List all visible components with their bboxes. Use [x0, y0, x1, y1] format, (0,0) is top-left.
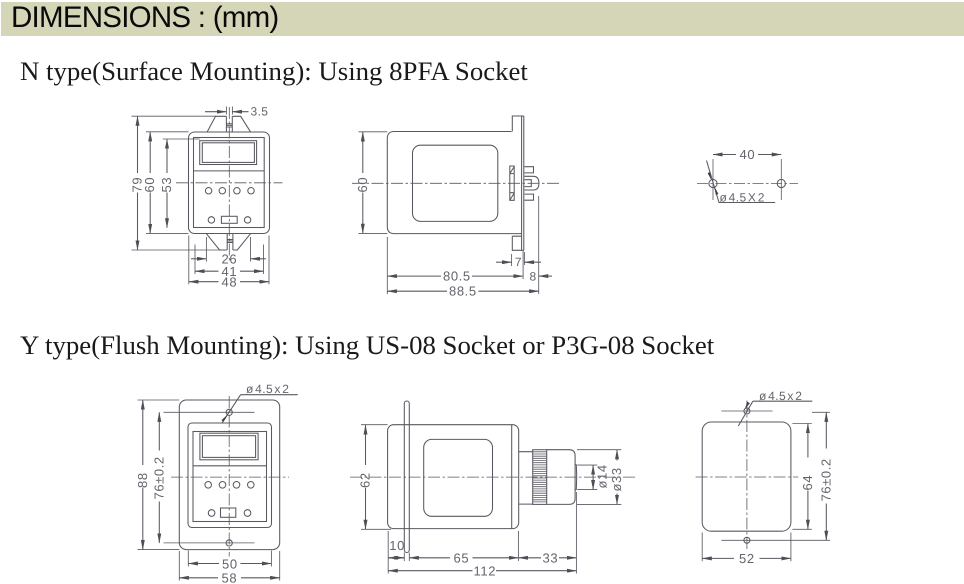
svg-text:7: 7 [515, 255, 522, 269]
svg-text:88.5: 88.5 [449, 284, 477, 299]
svg-text:80.5: 80.5 [443, 269, 471, 284]
svg-text:40: 40 [740, 147, 756, 162]
svg-text:88: 88 [135, 472, 150, 488]
svg-text:64: 64 [800, 475, 815, 491]
svg-text:ø33: ø33 [609, 467, 624, 491]
svg-text:112: 112 [474, 564, 497, 579]
svg-text:ø14: ø14 [595, 464, 610, 488]
svg-text:60: 60 [142, 177, 157, 193]
svg-text:58: 58 [222, 571, 238, 584]
svg-text:50: 50 [222, 556, 238, 571]
svg-text:33: 33 [543, 551, 559, 566]
svg-text:ø 4.5 x 2: ø 4.5 x 2 [759, 389, 802, 403]
svg-text:8: 8 [530, 270, 537, 284]
svg-text:65: 65 [454, 551, 470, 566]
svg-text:62: 62 [358, 472, 373, 488]
svg-text:52: 52 [739, 551, 755, 566]
svg-text:76±0.2: 76±0.2 [818, 458, 833, 501]
svg-text:10: 10 [389, 538, 405, 553]
svg-text:53: 53 [159, 177, 174, 193]
svg-text:3.5: 3.5 [251, 105, 269, 119]
svg-text:60: 60 [355, 177, 370, 193]
svg-text:76±0.2: 76±0.2 [151, 456, 166, 499]
svg-text:ø 4.5 X 2: ø 4.5 X 2 [720, 190, 765, 204]
svg-text:48: 48 [222, 274, 238, 289]
svg-text:ø 4.5 x 2: ø 4.5 x 2 [246, 382, 289, 396]
